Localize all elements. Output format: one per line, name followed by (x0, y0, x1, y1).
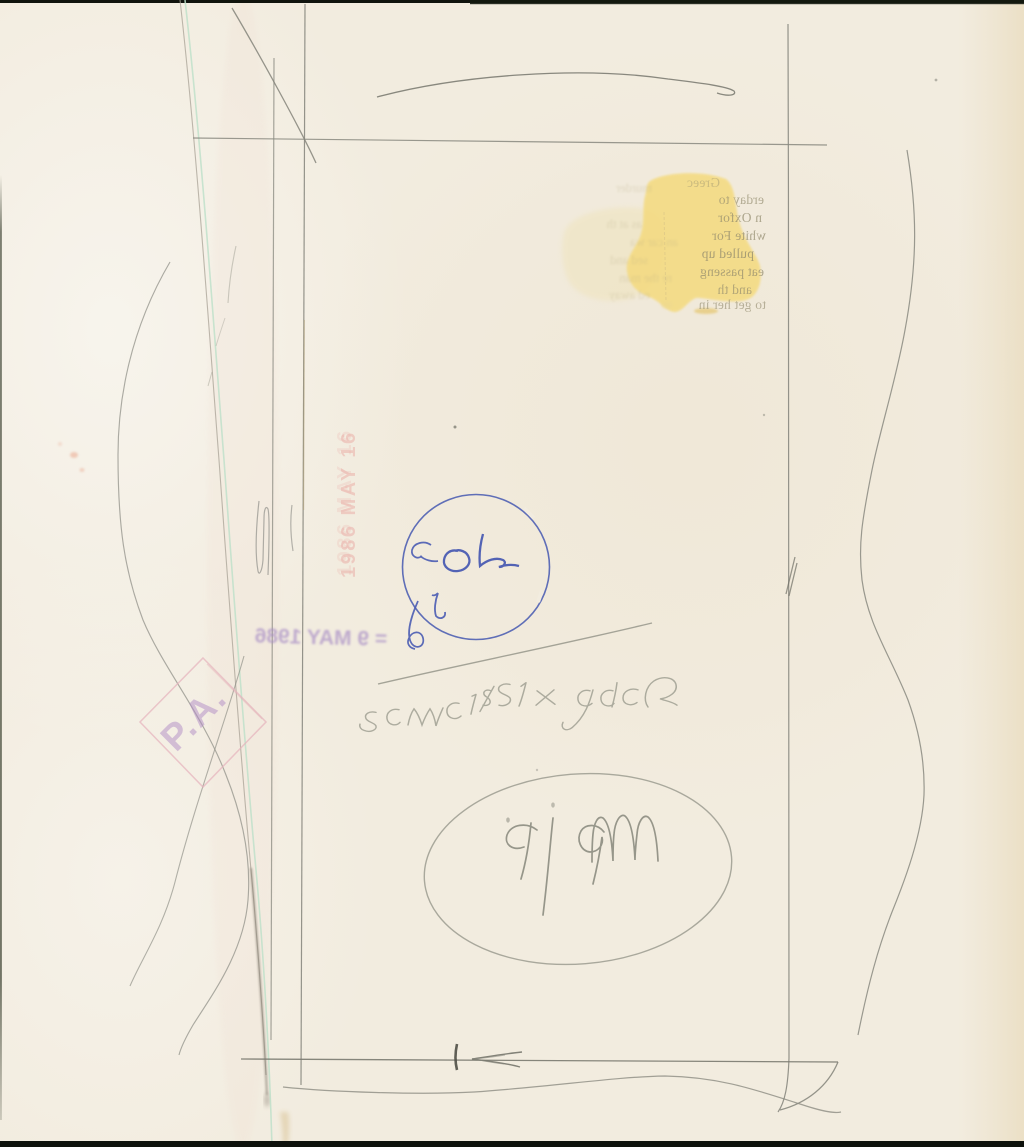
svg-text:to get her in: to get her in (698, 297, 766, 312)
svg-text:and th: and th (717, 282, 752, 297)
svg-text:1986 MAY 16: 1986 MAY 16 (334, 428, 356, 576)
svg-text:an car wa: an car wa (630, 235, 678, 249)
svg-text:erday to: erday to (718, 192, 764, 207)
svg-text:n Oxfor: n Oxfor (718, 210, 762, 225)
svg-text:re the man: re the man (618, 271, 672, 285)
svg-text:murder: murder (615, 181, 652, 195)
svg-text:white For: white For (712, 228, 766, 243)
svg-text:= 9 MAY 1986: = 9 MAY 1986 (254, 625, 387, 651)
svg-text:as at th: as at th (606, 217, 642, 231)
svg-text:eat passeng: eat passeng (700, 264, 764, 279)
svg-text:ed away: ed away (608, 288, 650, 302)
svg-text:sed and: sed and (609, 253, 648, 267)
svg-text:pulled up: pulled up (702, 246, 754, 261)
svg-text:Greec: Greec (687, 175, 720, 190)
